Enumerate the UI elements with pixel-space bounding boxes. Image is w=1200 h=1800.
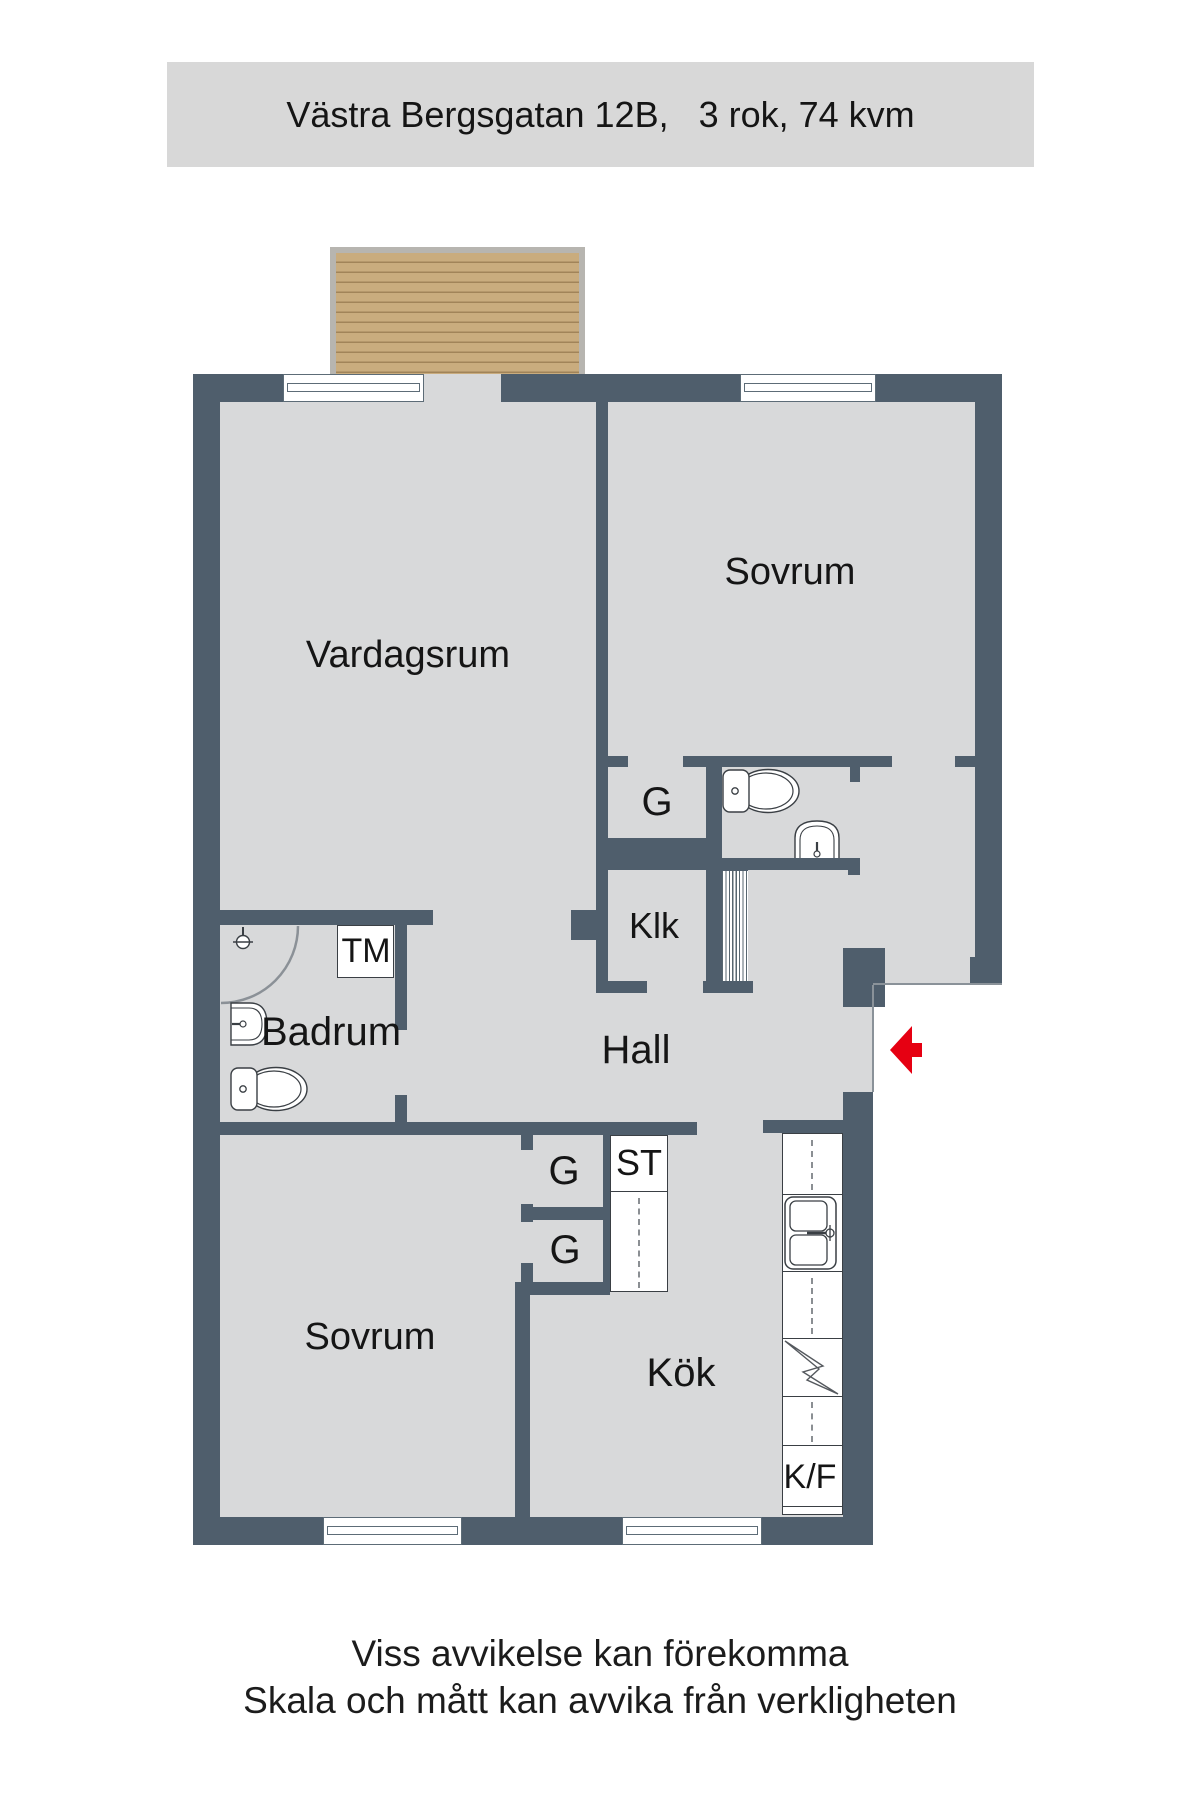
toilet-icon: [722, 768, 800, 814]
wall-g1-g2-divider: [533, 1207, 603, 1220]
window-frame: [626, 1526, 758, 1535]
wall-kitchen-right: [843, 1092, 873, 1545]
window-sovrum-top: [740, 374, 876, 402]
st-closet-dashline: [638, 1198, 640, 1288]
counter-dashline: [811, 1278, 813, 1334]
sink-icon: [792, 818, 842, 858]
closet-label-g1: G: [548, 1151, 579, 1191]
room-label-hall: Hall: [602, 1030, 671, 1070]
appliance-label-kf: K/F: [784, 1460, 837, 1494]
floorplan-page: { "header": { "title": "Västra Bergsgata…: [0, 0, 1200, 1800]
title-bar: Västra Bergsgatan 12B, 3 rok, 74 kvm: [167, 62, 1034, 167]
room-label-badrum: Badrum: [261, 1012, 401, 1052]
wall-g1-jamb: [521, 1135, 533, 1150]
window-kok-bottom: [622, 1517, 762, 1545]
room-label-klk: Klk: [629, 908, 679, 944]
wall-wc-bottom-jamb: [848, 858, 860, 875]
window-vardagsrum-top: [283, 374, 424, 402]
wall-klk-bottom-west: [596, 981, 647, 993]
plan-title: Västra Bergsgatan 12B, 3 rok, 74 kvm: [286, 94, 914, 136]
wall-right-corner-block: [970, 957, 1002, 985]
wall-wc-door-jamb: [850, 767, 860, 782]
shower-icon: [220, 925, 300, 1005]
disclaimer: Viss avvikelse kan förekomma Skala och m…: [0, 1630, 1200, 1724]
entrance-arrow-icon: [890, 1026, 922, 1074]
wall-vardagsrum-divider: [596, 402, 608, 993]
closet-label-st: ST: [616, 1145, 662, 1181]
stove-cell: [783, 1339, 842, 1397]
st-closet-divider: [611, 1191, 667, 1192]
wall-outer-bottom: [193, 1517, 873, 1545]
wall-klk-bottom-east: [703, 981, 753, 993]
wall-g1-g2-jamb: [521, 1204, 533, 1222]
window-frame: [327, 1526, 458, 1535]
room-label-vardagsrum: Vardagsrum: [306, 636, 510, 674]
wall-gcloset-klk-thick: [596, 838, 722, 870]
counter-dashline: [811, 1402, 813, 1442]
disclaimer-line-2: Skala och mått kan avvika från verklighe…: [0, 1677, 1200, 1724]
counter-dashline: [811, 1140, 813, 1190]
wall-sovrum-kok-divider: [515, 1283, 530, 1517]
entrance-door-opening: [872, 985, 874, 1092]
wall-outer-right: [975, 374, 1002, 985]
disclaimer-line-1: Viss avvikelse kan förekomma: [0, 1630, 1200, 1677]
counter-section: [783, 1272, 842, 1339]
wall-outer-left: [193, 374, 220, 1545]
kitchen-sink-cell: [783, 1195, 842, 1272]
closet-label-g2: G: [549, 1230, 580, 1270]
wall-wc-west: [706, 757, 722, 993]
appliance-label-tm: TM: [341, 934, 390, 968]
floor-plan: Västra Bergsgatan 12B, 3 rok, 74 kvm: [0, 0, 1200, 1800]
wall-closet-east: [603, 1135, 610, 1295]
room-label-kok: Kök: [647, 1353, 716, 1393]
toilet-icon: [230, 1066, 308, 1112]
counter-section: [783, 1134, 842, 1195]
wall-entrance-jamb: [843, 948, 885, 1007]
balcony: [330, 247, 585, 374]
room-label-sovrum-1: Sovrum: [725, 553, 856, 591]
window-frame: [744, 383, 872, 392]
wall-hall-south: [220, 1122, 697, 1135]
room-label-sovrum-2: Sovrum: [305, 1318, 436, 1356]
window-sovrum-bottom: [323, 1517, 462, 1545]
stove-icon: [783, 1339, 840, 1396]
wall-passage-jamb: [571, 910, 596, 940]
wall-badrum-top: [193, 910, 433, 925]
kitchen-sink-icon: [783, 1195, 840, 1271]
wall-gcloset-top-stub: [608, 756, 628, 767]
balcony-door-opening: [424, 374, 501, 402]
ventilation-shaft: [722, 868, 748, 981]
window-frame: [287, 383, 420, 392]
recess-edge-horizontal: [873, 983, 1002, 985]
closet-label-g-upper: G: [641, 782, 672, 822]
counter-section: [783, 1397, 842, 1446]
wall-sovrum-south-east: [955, 756, 975, 767]
wall-kitchen-entry-stub: [763, 1120, 843, 1133]
